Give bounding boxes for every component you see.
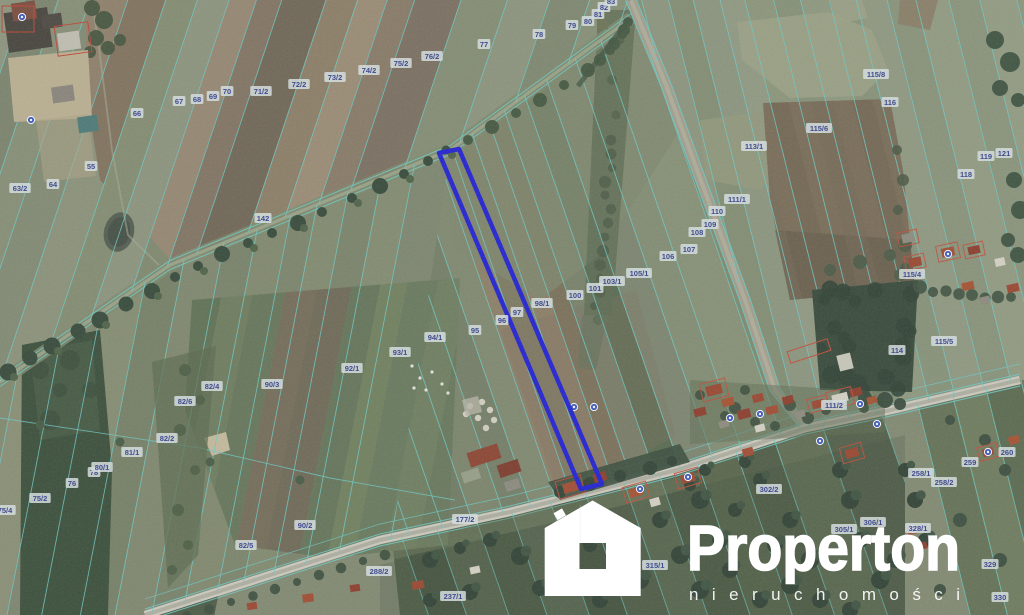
svg-text:Properton: Properton — [687, 512, 960, 584]
svg-text:nieruchomości: nieruchomości — [689, 585, 960, 604]
